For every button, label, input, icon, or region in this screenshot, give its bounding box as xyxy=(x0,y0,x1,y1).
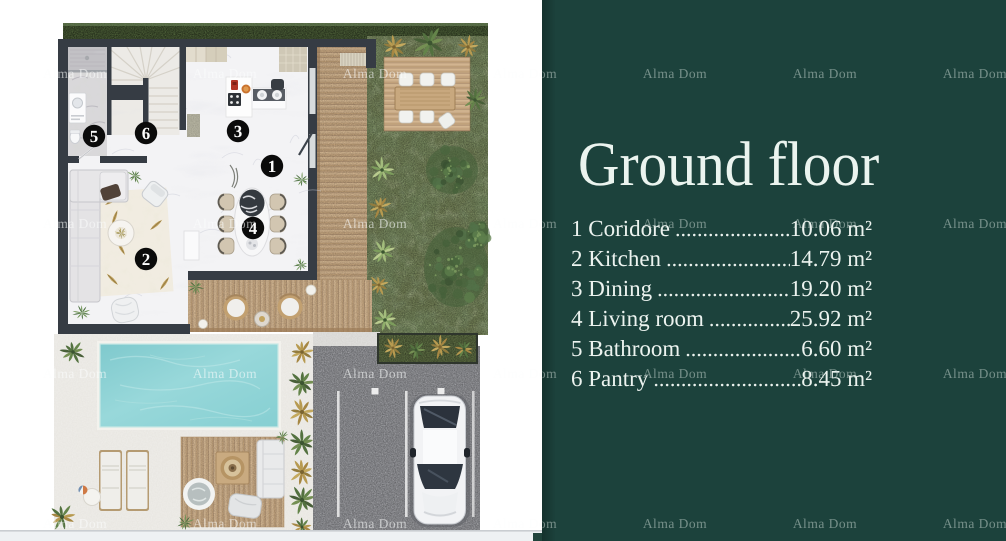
svg-text:4: 4 xyxy=(249,219,258,238)
svg-text:2: 2 xyxy=(142,250,151,269)
svg-text:5: 5 xyxy=(90,127,99,146)
svg-text:3: 3 xyxy=(234,122,243,141)
svg-text:1: 1 xyxy=(268,157,277,176)
svg-text:6: 6 xyxy=(142,124,151,143)
